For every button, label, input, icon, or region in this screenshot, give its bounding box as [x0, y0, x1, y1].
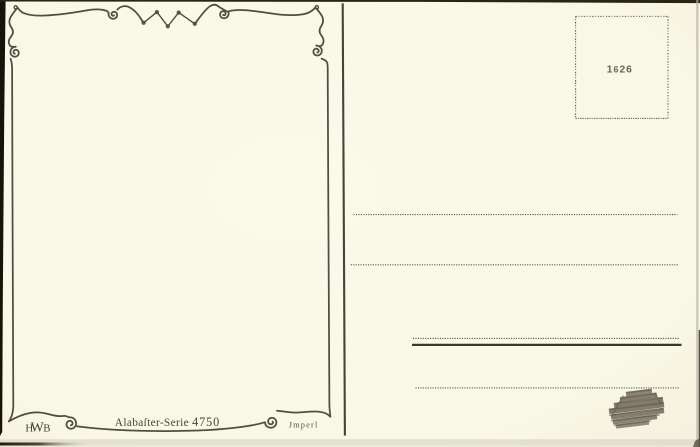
svg-text:1626: 1626 [607, 64, 633, 75]
svg-text:B: B [43, 422, 50, 434]
svg-text:Jmperl: Jmperl [289, 421, 319, 430]
svg-text:Alabaſter-Serie 4750: Alabaſter-Serie 4750 [115, 415, 220, 429]
